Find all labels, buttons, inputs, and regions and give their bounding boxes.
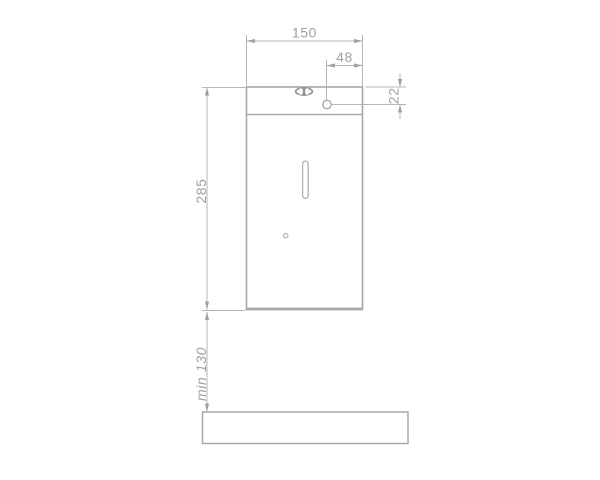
- arrowhead-right-icon: [354, 63, 363, 67]
- arrowhead-right-icon: [354, 39, 363, 43]
- pin-hole: [284, 233, 288, 237]
- dim-label-body-width: 150: [292, 25, 317, 41]
- dim-label-clearance: min 130: [193, 347, 209, 401]
- arrowhead-up-icon: [398, 105, 402, 113]
- arrowhead-up-icon: [205, 312, 209, 320]
- counter-surface-outline: [203, 412, 409, 444]
- outlet-circle: [323, 100, 331, 108]
- arrowhead-left-icon: [247, 39, 256, 43]
- lock-icon: [296, 88, 313, 95]
- arrowhead-down-icon: [205, 404, 209, 412]
- dim-outlet-drop: 22: [332, 74, 406, 120]
- dim-label-outlet-offset: 48: [336, 49, 353, 65]
- dim-body-height: 285: [193, 88, 246, 311]
- arrowhead-down-icon: [205, 302, 209, 310]
- dim-clearance-below: min 130: [193, 312, 209, 412]
- sight-window-slot: [303, 161, 309, 198]
- drawing-canvas: 150 48 22 285 min 130: [0, 0, 600, 480]
- dim-label-outlet-drop: 22: [386, 87, 402, 104]
- dim-outlet-offset: 48: [327, 49, 363, 100]
- dim-label-body-height: 285: [193, 178, 209, 203]
- arrowhead-left-icon: [327, 63, 336, 67]
- technical-drawing: 150 48 22 285 min 130: [0, 0, 600, 480]
- arrowhead-up-icon: [205, 88, 209, 96]
- arrowhead-down-icon: [398, 79, 402, 87]
